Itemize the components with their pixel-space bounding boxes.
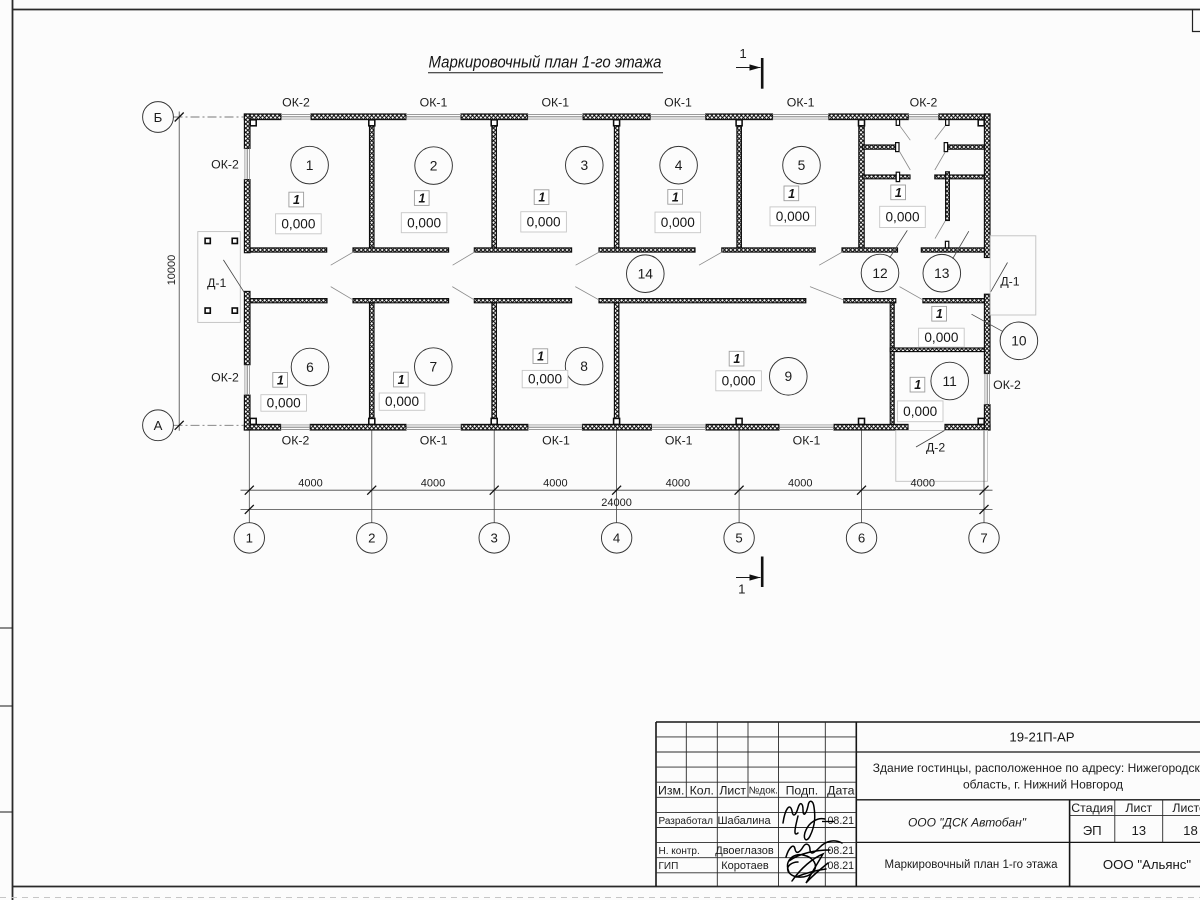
svg-text:2: 2 xyxy=(368,531,375,546)
svg-text:4: 4 xyxy=(675,158,683,173)
svg-text:0,000: 0,000 xyxy=(281,216,315,231)
svg-text:Лист: Лист xyxy=(1125,801,1152,815)
svg-text:А: А xyxy=(154,418,163,433)
svg-text:ОК-2: ОК-2 xyxy=(211,371,239,385)
svg-text:0,000: 0,000 xyxy=(385,394,419,409)
svg-text:3: 3 xyxy=(491,531,498,546)
svg-text:область, г. Нижний Новгород: область, г. Нижний Новгород xyxy=(963,778,1123,792)
svg-text:Изм.: Изм. xyxy=(658,783,684,797)
svg-text:Шабалина: Шабалина xyxy=(717,815,771,827)
svg-text:1: 1 xyxy=(398,373,405,387)
svg-text:1: 1 xyxy=(537,350,544,364)
svg-text:Разработал: Разработал xyxy=(659,815,714,827)
svg-text:Н. контр.: Н. контр. xyxy=(659,846,700,857)
svg-text:1: 1 xyxy=(538,191,545,205)
svg-text:10: 10 xyxy=(1011,334,1027,349)
svg-text:Коротаев: Коротаев xyxy=(721,860,769,872)
svg-text:14: 14 xyxy=(638,267,654,282)
svg-text:ОК-1: ОК-1 xyxy=(541,96,569,110)
svg-text:ОК-1: ОК-1 xyxy=(542,434,570,448)
svg-text:13: 13 xyxy=(934,266,950,281)
svg-text:Маркировочный план 1-го этажа: Маркировочный план 1-го этажа xyxy=(885,859,1059,871)
svg-text:11: 11 xyxy=(943,374,957,389)
svg-text:1: 1 xyxy=(895,186,902,200)
svg-text:0,000: 0,000 xyxy=(776,209,810,224)
svg-text:0,000: 0,000 xyxy=(903,404,937,419)
svg-text:19-21П-АР: 19-21П-АР xyxy=(1009,730,1074,745)
svg-text:1: 1 xyxy=(246,531,253,546)
svg-text:1: 1 xyxy=(739,46,746,61)
svg-text:1: 1 xyxy=(277,373,284,387)
svg-text:0,000: 0,000 xyxy=(527,214,561,229)
svg-text:ООО "ДСК Автобан": ООО "ДСК Автобан" xyxy=(908,815,1027,829)
svg-text:1: 1 xyxy=(672,190,679,204)
svg-text:0,000: 0,000 xyxy=(885,210,919,225)
svg-text:Б: Б xyxy=(154,110,163,125)
svg-text:ОК-1: ОК-1 xyxy=(420,434,448,448)
svg-text:5: 5 xyxy=(735,531,742,546)
svg-text:1: 1 xyxy=(936,307,943,321)
svg-text:Кол.: Кол. xyxy=(690,783,714,797)
svg-text:Здание гостинцы, расположенное: Здание гостинцы, расположенное по адресу… xyxy=(873,761,1200,775)
svg-text:08.21: 08.21 xyxy=(828,860,855,872)
svg-text:4000: 4000 xyxy=(666,477,690,489)
svg-text:13: 13 xyxy=(1131,823,1146,838)
svg-text:1: 1 xyxy=(738,582,745,597)
svg-text:№док.: №док. xyxy=(749,786,778,797)
svg-text:Маркировочный план 1-го этажа: Маркировочный план 1-го этажа xyxy=(429,53,662,71)
svg-text:1: 1 xyxy=(419,192,426,206)
svg-text:4000: 4000 xyxy=(298,477,322,489)
svg-text:0,000: 0,000 xyxy=(661,215,695,230)
svg-text:18: 18 xyxy=(1183,823,1198,838)
svg-text:8: 8 xyxy=(580,359,588,374)
svg-text:ОК-2: ОК-2 xyxy=(993,378,1021,392)
svg-text:Д-2: Д-2 xyxy=(926,440,945,454)
svg-text:4000: 4000 xyxy=(421,477,445,489)
svg-text:ОК-2: ОК-2 xyxy=(282,96,310,110)
svg-text:0,000: 0,000 xyxy=(267,396,301,411)
svg-text:1: 1 xyxy=(788,187,795,201)
svg-text:Подп.: Подп. xyxy=(786,783,819,797)
svg-text:ОК-1: ОК-1 xyxy=(664,96,692,110)
svg-text:3: 3 xyxy=(580,158,588,173)
svg-text:Листов: Листов xyxy=(1172,801,1200,815)
svg-text:4000: 4000 xyxy=(911,477,935,489)
svg-text:ОК-1: ОК-1 xyxy=(420,96,448,110)
svg-text:Двоеглазов: Двоеглазов xyxy=(715,845,774,857)
svg-text:9: 9 xyxy=(784,369,792,384)
svg-text:Дата: Дата xyxy=(827,783,854,797)
svg-text:4000: 4000 xyxy=(788,477,812,489)
svg-text:ОК-1: ОК-1 xyxy=(793,434,821,448)
svg-text:1: 1 xyxy=(914,378,921,392)
svg-text:ОК-2: ОК-2 xyxy=(211,157,239,171)
svg-text:Стадия: Стадия xyxy=(1071,801,1113,815)
svg-text:6: 6 xyxy=(306,360,314,375)
svg-text:2: 2 xyxy=(430,159,438,174)
svg-text:7: 7 xyxy=(429,360,437,375)
svg-text:12: 12 xyxy=(872,266,887,281)
svg-text:ОК-1: ОК-1 xyxy=(665,434,693,448)
svg-text:6: 6 xyxy=(858,531,865,546)
svg-text:24000: 24000 xyxy=(601,497,632,509)
svg-text:08.21: 08.21 xyxy=(828,845,855,857)
svg-text:ЭП: ЭП xyxy=(1083,823,1102,838)
svg-text:4000: 4000 xyxy=(543,477,567,489)
svg-text:1: 1 xyxy=(306,158,314,173)
svg-text:Д-1: Д-1 xyxy=(207,276,226,290)
svg-text:ОК-2: ОК-2 xyxy=(282,434,310,448)
svg-text:ГИП: ГИП xyxy=(659,861,679,872)
svg-text:0,000: 0,000 xyxy=(528,372,562,387)
svg-text:7: 7 xyxy=(980,531,987,546)
svg-text:5: 5 xyxy=(798,158,806,173)
svg-text:0,000: 0,000 xyxy=(407,215,441,230)
svg-text:ОК-2: ОК-2 xyxy=(910,96,938,110)
svg-text:Лист: Лист xyxy=(719,783,746,797)
svg-text:Д-1: Д-1 xyxy=(1000,274,1019,288)
svg-text:ООО "Альянс": ООО "Альянс" xyxy=(1103,857,1191,872)
svg-text:1: 1 xyxy=(293,193,300,207)
svg-text:4: 4 xyxy=(613,531,620,546)
svg-text:ОК-1: ОК-1 xyxy=(787,96,815,110)
svg-text:10000: 10000 xyxy=(166,255,178,286)
svg-text:0,000: 0,000 xyxy=(924,330,958,345)
svg-text:0,000: 0,000 xyxy=(722,373,756,388)
svg-text:1: 1 xyxy=(733,352,740,366)
